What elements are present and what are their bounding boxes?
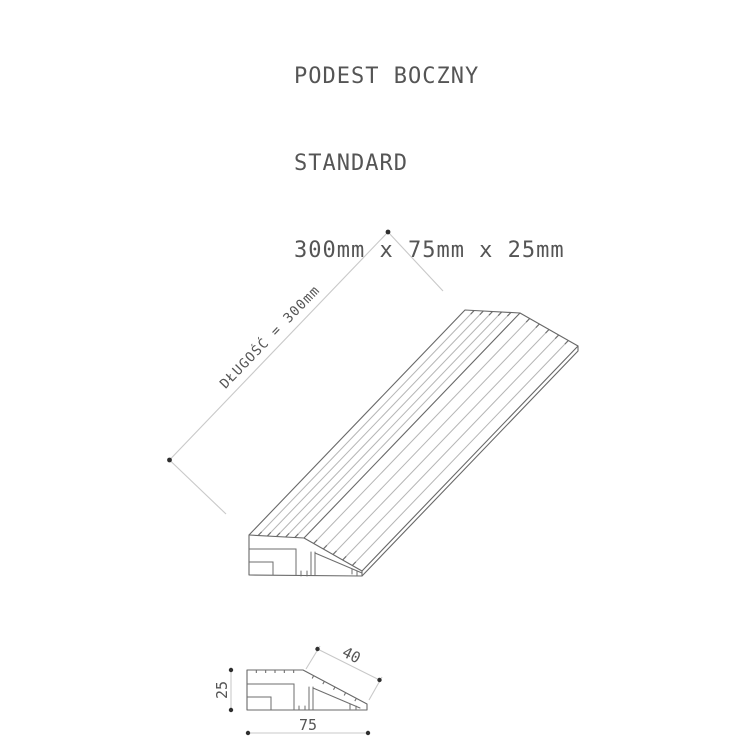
technical-drawing: DŁUGOŚĆ = 300mm	[0, 0, 750, 750]
isometric-view: DŁUGOŚĆ = 300mm	[167, 230, 578, 576]
profile-top-ribs	[258, 311, 568, 566]
length-dimension-label: DŁUGOŚĆ = 300mm	[215, 281, 323, 392]
height-dimension: 25	[213, 668, 233, 712]
height-dimension-label: 25	[213, 681, 231, 699]
section-groove-ticks	[256, 670, 356, 701]
drawing-sheet: PODEST BOCZNY STANDARD 300mm x 75mm x 25…	[0, 0, 750, 750]
cross-section-view: 25 75 40	[213, 643, 382, 735]
width-dimension-label: 75	[299, 716, 317, 734]
slope-dimension-label: 40	[339, 643, 363, 667]
section-profile	[247, 670, 367, 710]
profile-body	[249, 310, 578, 576]
length-dimension: DŁUGOŚĆ = 300mm	[167, 230, 443, 514]
width-dimension: 75	[246, 716, 370, 735]
